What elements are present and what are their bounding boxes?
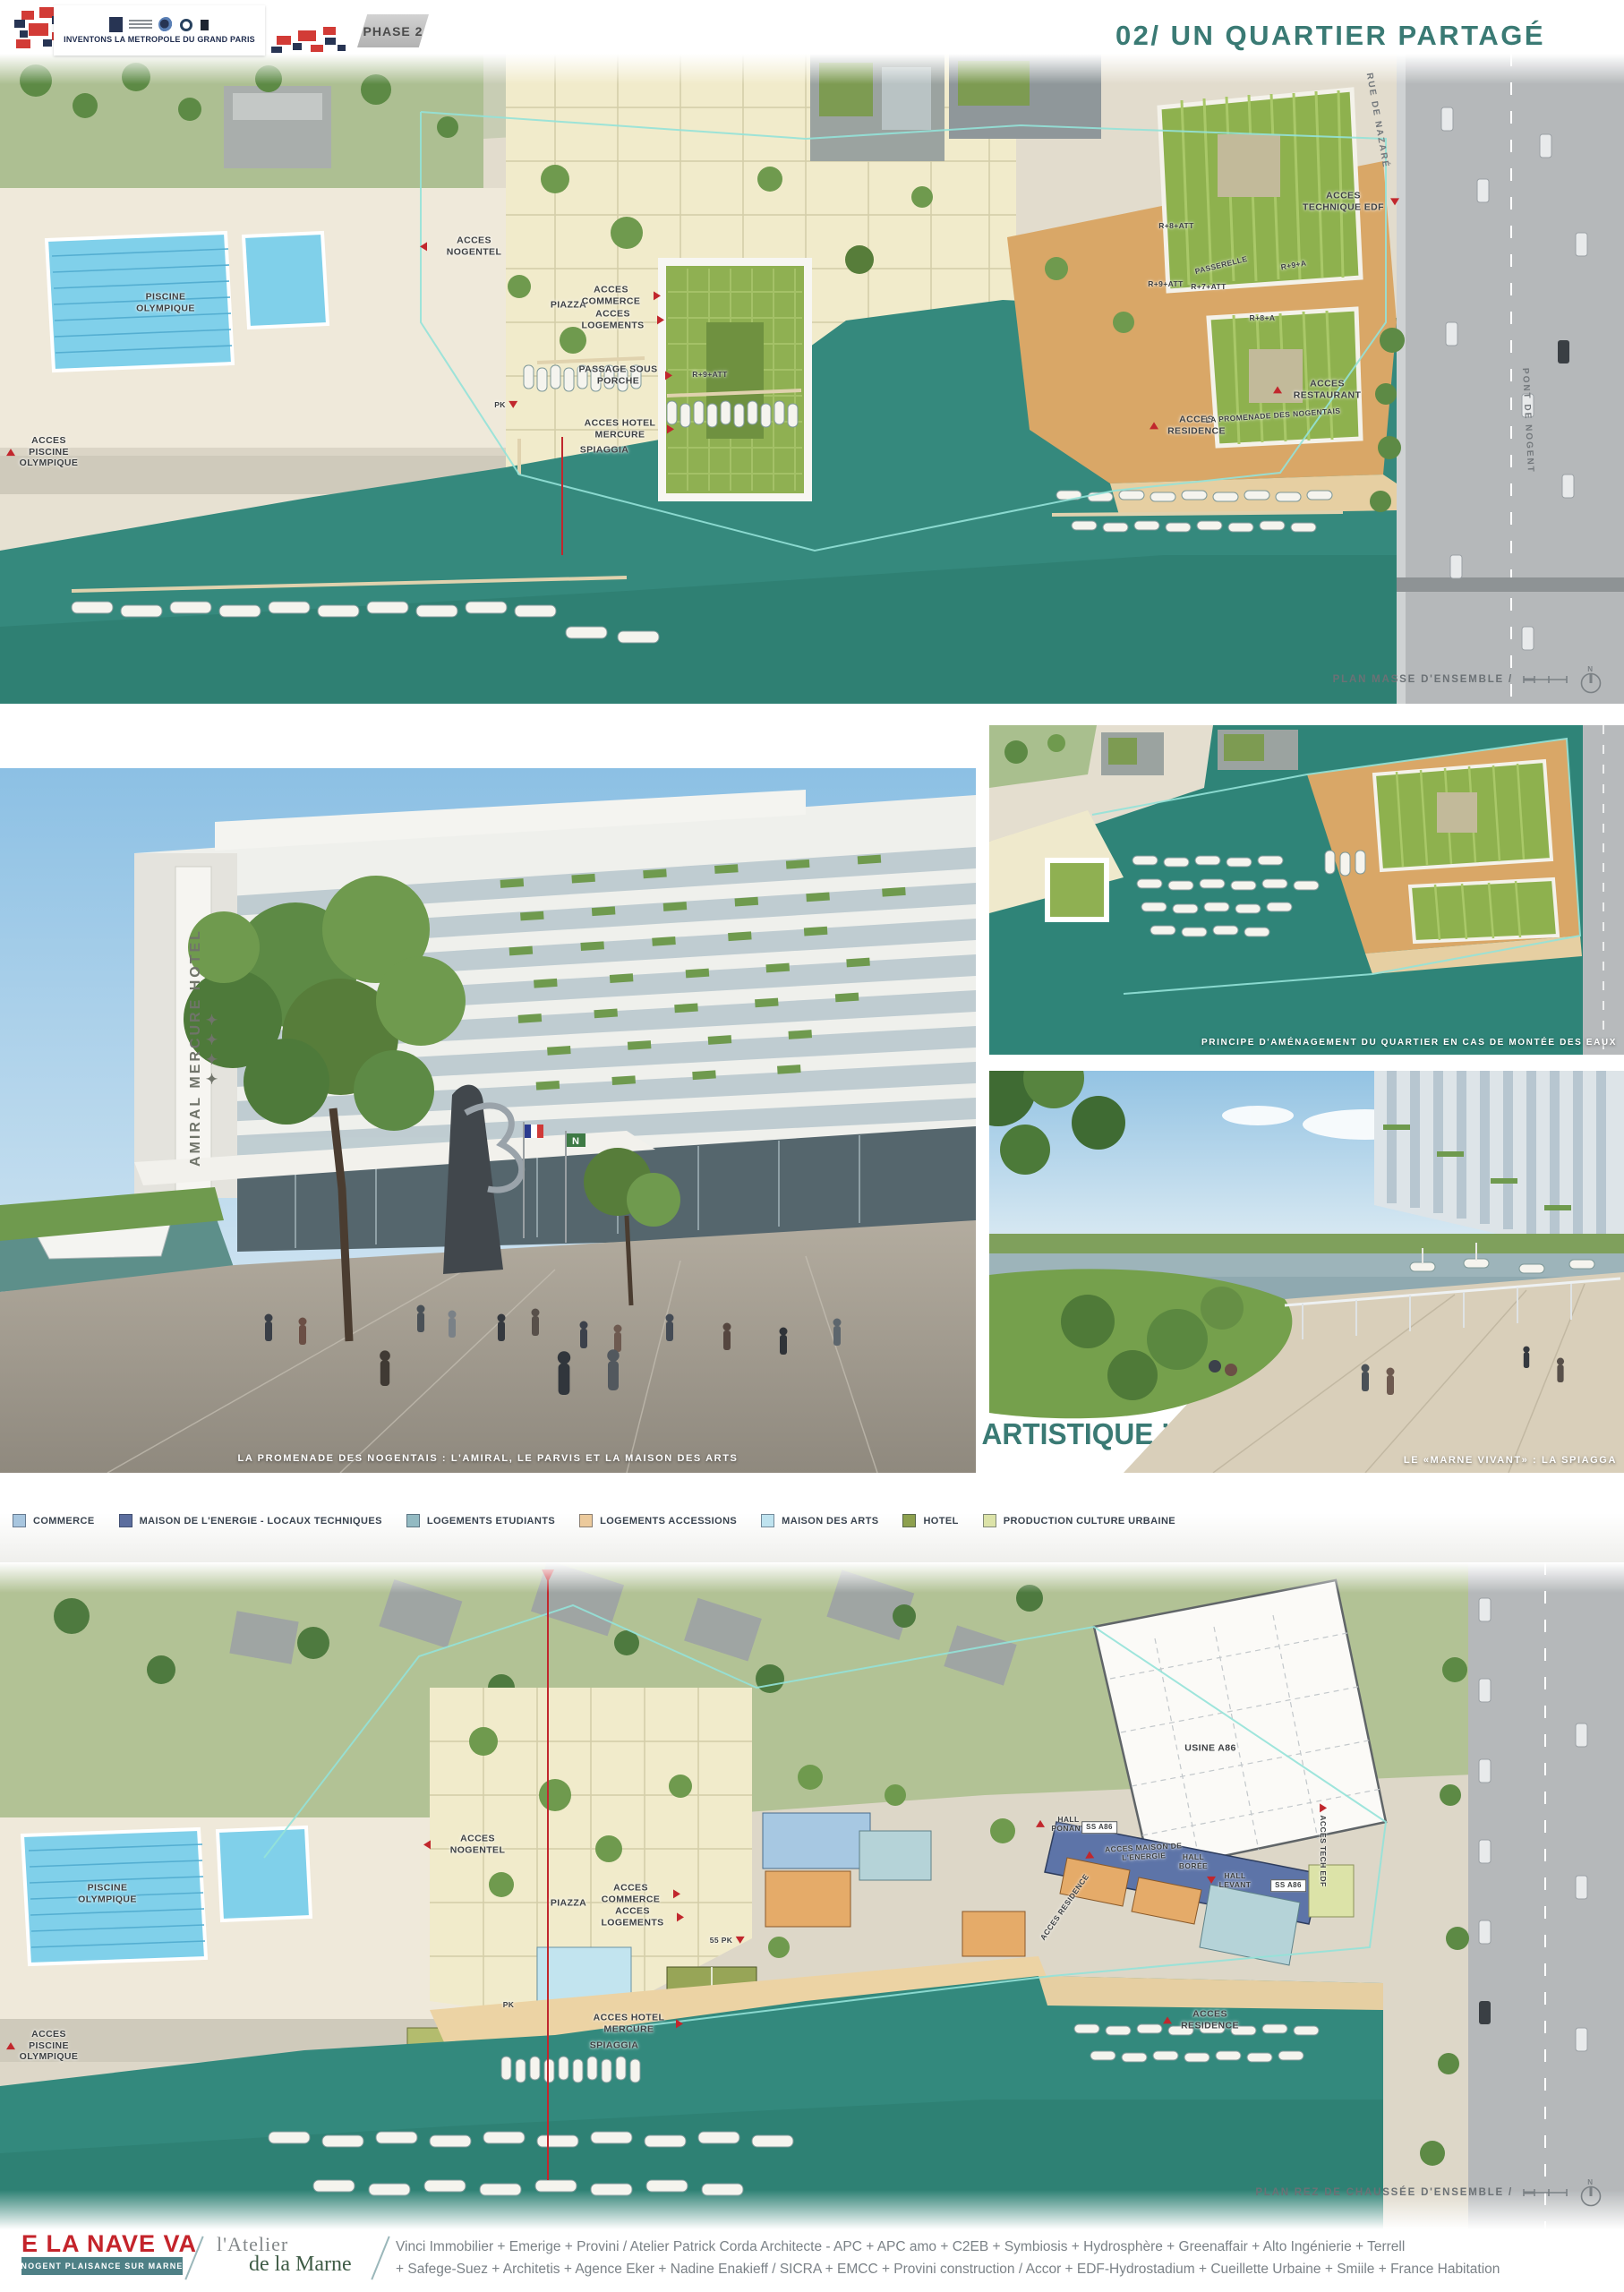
legend-item: PRODUCTION CULTURE URBAINE	[983, 1514, 1175, 1527]
access-marker-icon	[1085, 1852, 1094, 1860]
map-label: PASSAGE SOUS PORCHE	[574, 363, 672, 386]
legend-color-swatch	[13, 1514, 26, 1527]
footer: E LA NAVE VA NOGENT PLAISANCE SUR MARNE …	[0, 2229, 1624, 2292]
marne-vivant-photo: LE «MARNE VIVANT» : LA SPIAGGA	[989, 1071, 1624, 1473]
promenade-caption: LA PROMENADE DES NOGENTAIS : L'AMIRAL, L…	[238, 1453, 739, 1464]
flood-plan-art	[989, 725, 1624, 1055]
plan-rdc-art	[0, 1562, 1624, 2229]
round-logo-icon	[180, 19, 192, 31]
north-arrow-icon: N	[1579, 2177, 1603, 2208]
header: INVENTONS LA METROPOLE DU GRAND PARIS PH…	[0, 0, 1624, 54]
access-marker-icon	[677, 1912, 684, 1921]
partners-line-2: + Safege-Suez + Architetis + Agence Eker…	[396, 2258, 1613, 2280]
inventons-banner: INVENTONS LA METROPOLE DU GRAND PARIS	[54, 5, 265, 56]
access-marker-icon	[1207, 1877, 1216, 1884]
flood-plan-image: PRINCIPE D'AMÉNAGEMENT DU QUARTIER EN CA…	[989, 725, 1624, 1055]
map-label: SS A86	[1081, 1821, 1117, 1834]
access-marker-icon	[1320, 1803, 1327, 1812]
poster-board: PISCINE OLYMPIQUE ACCES PISCINE OLYMPIQU…	[0, 0, 1624, 2292]
metropole-grand-paris-logo-icon	[158, 17, 174, 32]
map-label: ACCES RESIDENCE	[1163, 2008, 1245, 2031]
square-logo-icon	[199, 18, 210, 32]
access-marker-icon	[667, 424, 674, 433]
map-label: R+9+ATT	[1148, 279, 1184, 288]
map-label: USINE A86	[1184, 1743, 1235, 1755]
legend: COMMERCE MAISON DE L'ENERGIE - LOCAUX TE…	[13, 1514, 1175, 1527]
legend-color-swatch	[119, 1514, 132, 1527]
map-label: PIAZZA	[551, 1898, 586, 1910]
access-marker-icon	[1390, 198, 1399, 205]
map-label: ACCES LOGEMENTS	[571, 308, 664, 330]
legend-color-swatch	[761, 1514, 774, 1527]
map-label: ACCES TECH EDF	[1319, 1803, 1328, 1886]
nave-pixel-logo-small-icon	[271, 23, 348, 54]
map-label: R+7+ATT	[1191, 282, 1227, 291]
map-label: ACCES HOTEL MERCURE	[576, 417, 674, 440]
flood-plan-caption: PRINCIPE D'AMÉNAGEMENT DU QUARTIER EN CA…	[1201, 1038, 1617, 1048]
map-label: SPIAGGIA	[590, 2040, 639, 2052]
svg-text:N: N	[1587, 665, 1594, 673]
legend-color-swatch	[406, 1514, 420, 1527]
access-marker-icon	[6, 449, 15, 456]
map-label: SPIAGGIA	[580, 445, 629, 457]
project-logo-title: E LA NAVE VA	[21, 2230, 197, 2258]
map-label: HALL LEVANT	[1207, 1871, 1252, 1889]
divider-slash	[371, 2236, 389, 2280]
prefecture-logo-icon	[129, 20, 152, 30]
map-label: ACCES NOGENTEL	[420, 235, 518, 257]
phase-tag: PHASE 2	[357, 14, 429, 47]
map-label: PK	[494, 400, 517, 409]
access-marker-icon	[657, 315, 664, 324]
legend-item: MAISON DES ARTS	[761, 1514, 878, 1527]
institution-logos	[109, 17, 210, 32]
svg-text:N: N	[1587, 2178, 1594, 2186]
map-label: ACCES COMMERCE	[571, 284, 661, 306]
page-title: 02/ UN QUARTIER PARTAGÉ	[1115, 20, 1545, 52]
map-label: HALL BORÉE	[1171, 1852, 1216, 1870]
map-label: ACCES PISCINE OLYMPIQUE	[6, 2029, 80, 2063]
map-label: ACCES NOGENTEL	[423, 1833, 522, 1855]
map-label: ACCES PISCINE OLYMPIQUE	[6, 435, 80, 469]
map-label: ACCES RESTAURANT	[1273, 378, 1370, 400]
plan-rdc-image: PISCINE OLYMPIQUE ACCES PISCINE OLYMPIQU…	[0, 1562, 1624, 2229]
map-label: 55 PK	[710, 1936, 745, 1945]
legend-item: LOGEMENTS ETUDIANTS	[406, 1514, 555, 1527]
inventons-title: INVENTONS LA METROPOLE DU GRAND PARIS	[64, 35, 255, 44]
fade-top	[0, 54, 1624, 84]
marne-vivant-art	[989, 1071, 1624, 1473]
legend-color-swatch	[579, 1514, 593, 1527]
plan-masse-caption: PLAN MASSE D'ENSEMBLE / N	[1333, 664, 1603, 695]
map-label: ACCES COMMERCE	[591, 1882, 680, 1904]
scale-bar-icon	[1522, 674, 1570, 685]
access-marker-icon	[1150, 422, 1158, 429]
fade-top	[0, 1562, 1624, 1593]
map-label: PISCINE OLYMPIQUE	[66, 1882, 149, 1904]
access-marker-icon	[676, 2019, 683, 2028]
access-marker-icon	[673, 1889, 680, 1898]
scale-bar-icon	[1522, 2187, 1570, 2198]
promenade-render: N AM	[0, 768, 976, 1473]
plan-masse-image: PISCINE OLYMPIQUE ACCES PISCINE OLYMPIQU…	[0, 54, 1624, 704]
partners-line-1: Vinci Immobilier + Emerige + Provini / A…	[396, 2236, 1613, 2258]
hotel-sign: AMIRAL MERCURE HOTEL ✦✦✦✦	[188, 898, 227, 1198]
map-label: R+9+ATT	[692, 370, 728, 379]
marne-vivant-caption: LE «MARNE VIVANT» : LA SPIAGGA	[1404, 1455, 1617, 1466]
map-label: ACCES LOGEMENTS	[591, 1905, 684, 1928]
legend-item: COMMERCE	[13, 1514, 95, 1527]
access-marker-icon	[1163, 2016, 1172, 2023]
atelier-logo: l'Atelier de la Marne	[217, 2233, 352, 2277]
legend-color-swatch	[983, 1514, 996, 1527]
map-label: R+8+A	[1250, 313, 1276, 322]
legend-item: LOGEMENTS ACCESSIONS	[579, 1514, 737, 1527]
access-marker-icon	[420, 242, 427, 251]
access-marker-icon	[423, 1840, 431, 1849]
map-label: ACCES TECHNIQUE EDF	[1299, 190, 1399, 212]
plan-rdc-caption: PLAN REZ DE CHAUSSÉE D'ENSEMBLE / N	[1255, 2177, 1603, 2208]
project-logo-subtitle: NOGENT PLAISANCE SUR MARNE	[21, 2257, 183, 2275]
societe-grand-paris-logo-icon	[109, 17, 123, 32]
map-label: PK	[503, 2000, 515, 2009]
partners-list: Vinci Immobilier + Emerige + Provini / A…	[396, 2236, 1613, 2280]
promenade-art: N	[0, 768, 976, 1473]
access-marker-icon	[665, 371, 672, 380]
svg-text:N: N	[572, 1136, 579, 1147]
map-label: PISCINE OLYMPIQUE	[124, 291, 207, 313]
north-arrow-icon: N	[1579, 664, 1603, 695]
access-marker-icon	[509, 401, 517, 408]
access-marker-icon	[735, 1937, 744, 1944]
access-marker-icon	[6, 2042, 15, 2049]
map-label: SS A86	[1270, 1879, 1306, 1892]
legend-item: MAISON DE L'ENERGIE - LOCAUX TECHNIQUES	[119, 1514, 382, 1527]
legend-item: HOTEL	[902, 1514, 958, 1527]
map-label: R+8+ATT	[1158, 221, 1194, 230]
map-label: ACCES HOTEL MERCURE	[585, 2012, 683, 2034]
access-marker-icon	[1036, 1820, 1045, 1827]
access-marker-icon	[654, 291, 661, 300]
access-marker-icon	[1273, 386, 1282, 393]
legend-color-swatch	[902, 1514, 916, 1527]
